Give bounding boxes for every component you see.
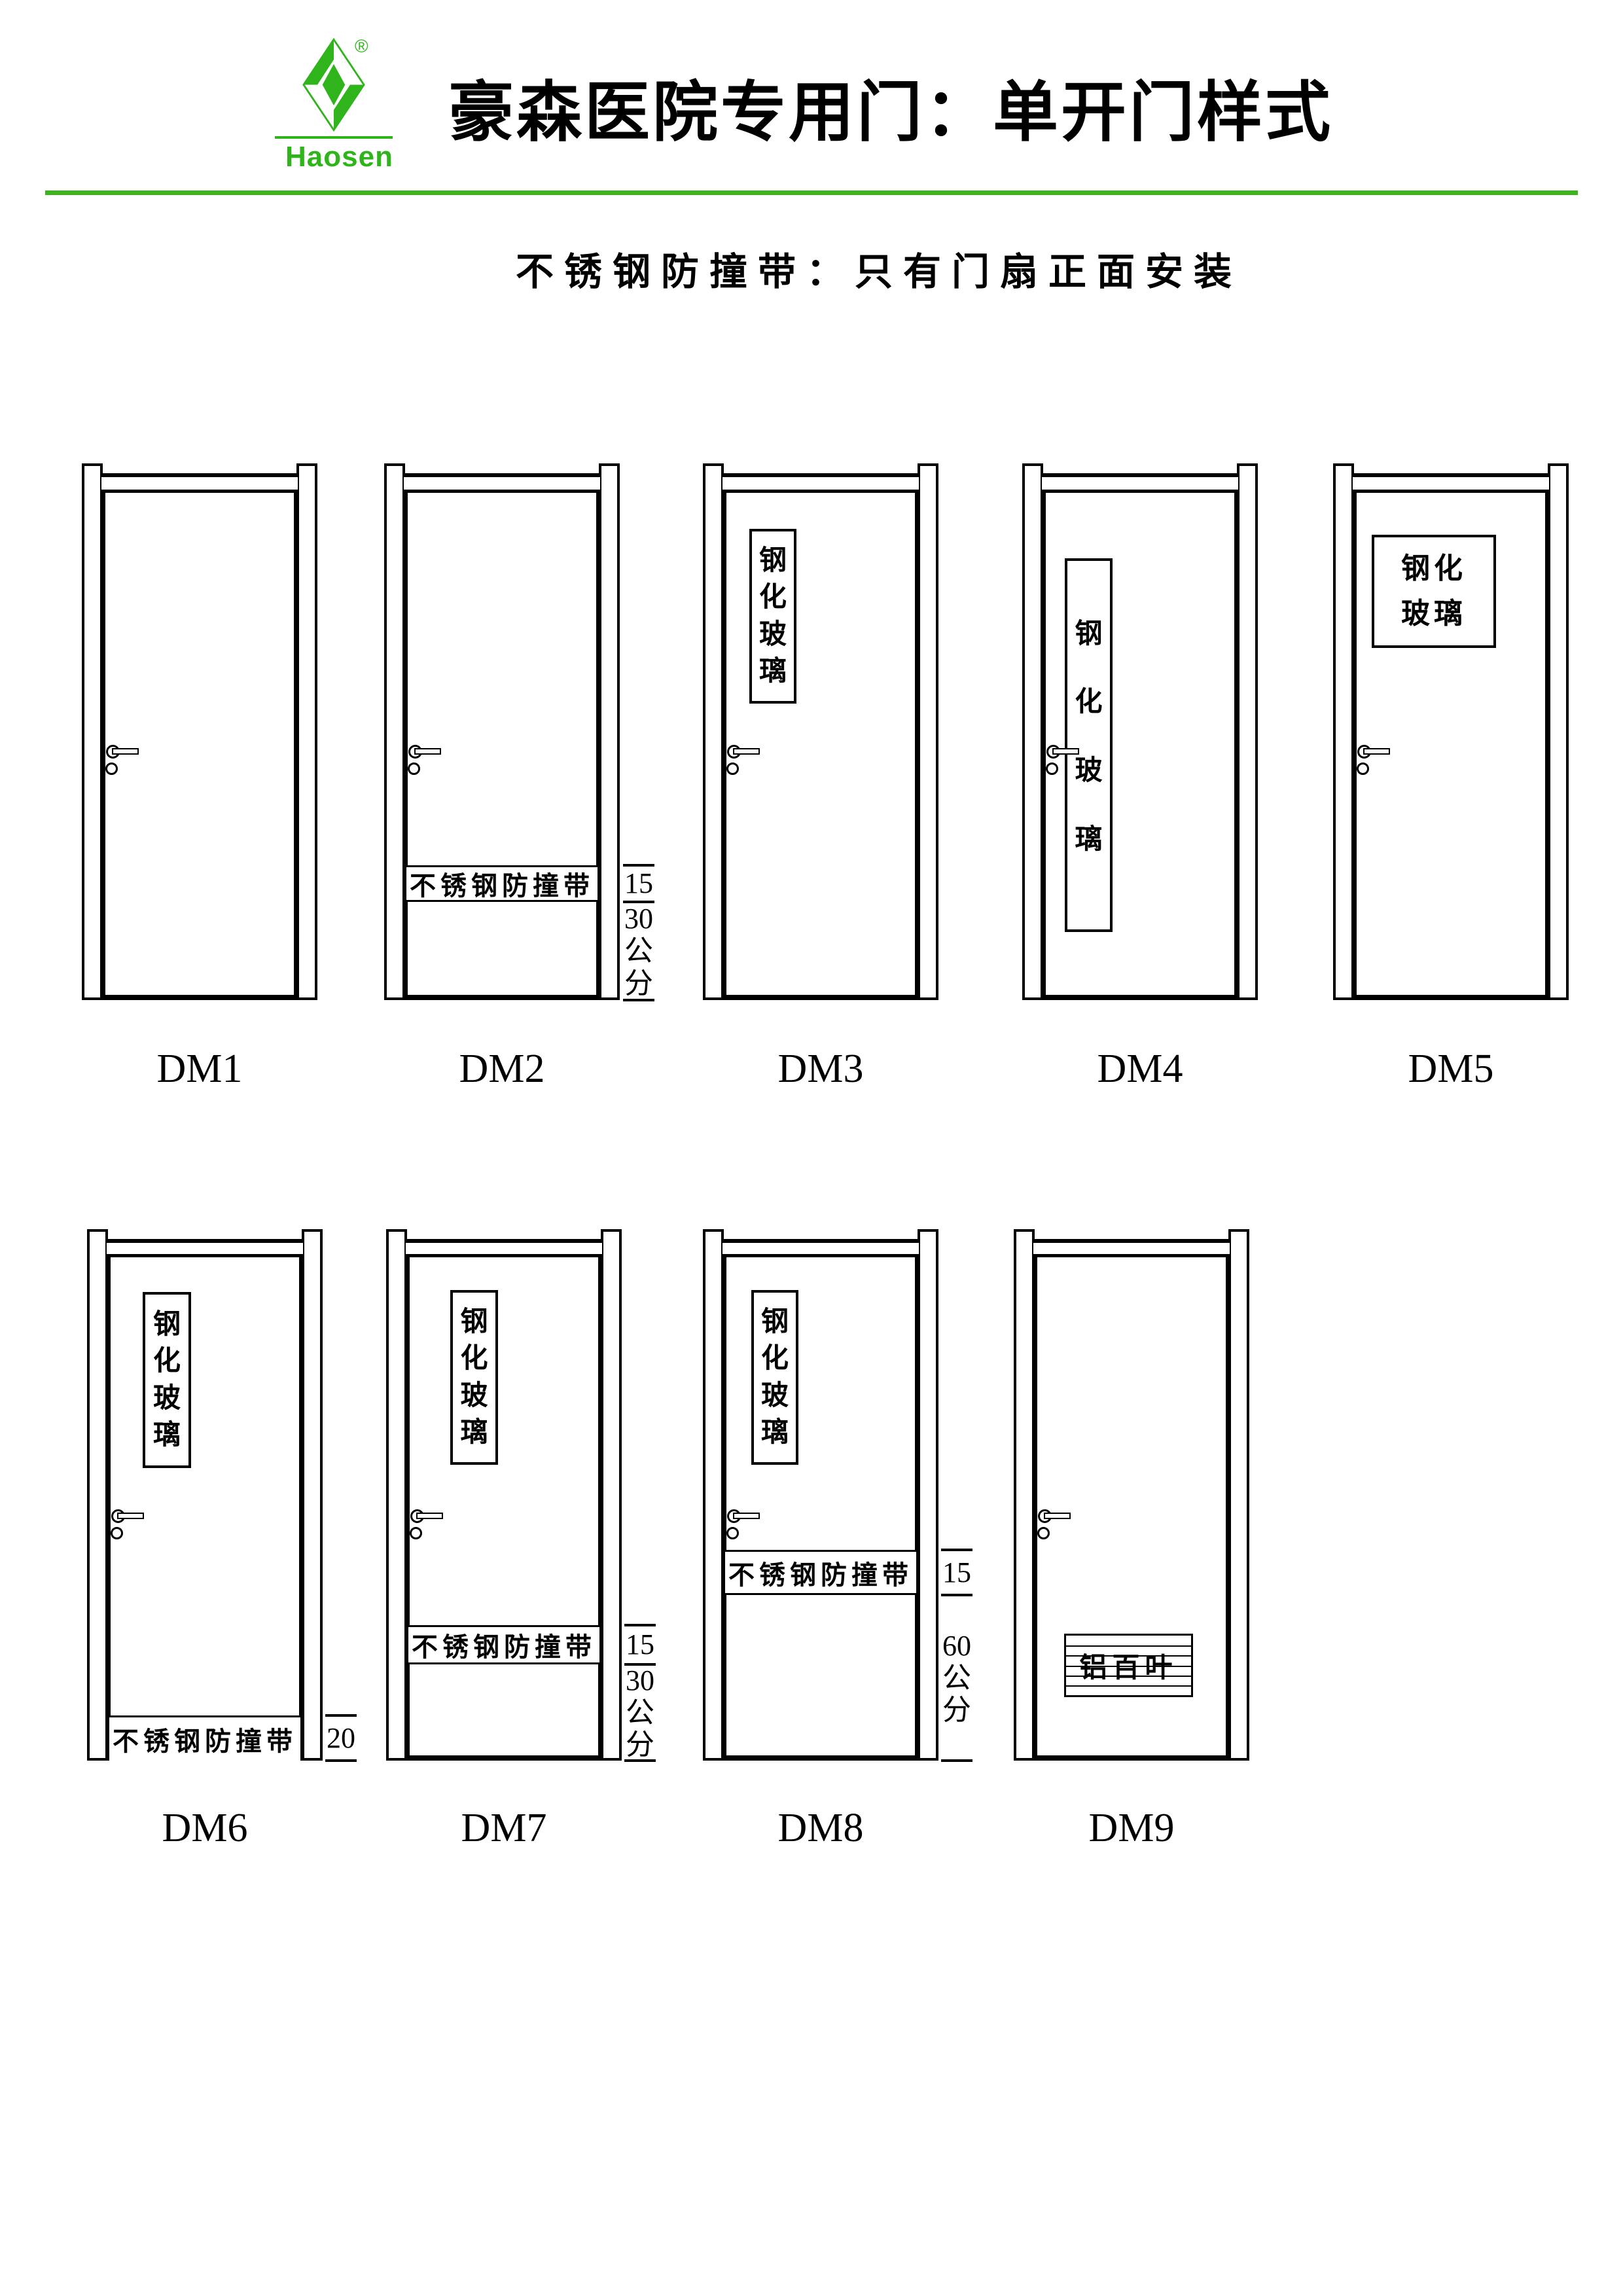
louver-label: 铝百叶	[1066, 1636, 1191, 1695]
door-leaf	[103, 493, 296, 1000]
door-lock-cylinder	[1046, 762, 1058, 775]
dim-segment-label: 15	[616, 865, 662, 902]
glass-panel: 钢化玻璃	[749, 529, 796, 704]
dim-text-line: 15	[624, 867, 653, 899]
dim-segment-label: 15	[934, 1550, 980, 1595]
door-label: DM6	[87, 1805, 323, 1852]
glass-panel-label: 化	[153, 1346, 181, 1376]
logo-brand-text: Haosen	[285, 141, 393, 173]
door-head-rail	[722, 473, 919, 493]
dim-text-line: 20	[327, 1722, 355, 1754]
haosen-logo: ® Haosen	[275, 36, 406, 167]
glass-panel-label: 玻	[1075, 756, 1102, 786]
door-lock-cylinder	[726, 1527, 739, 1539]
door-handle-lever	[1052, 748, 1079, 755]
door-jamb-right	[1228, 1229, 1249, 1761]
door-handle-lever	[1044, 1513, 1071, 1519]
door-jamb-left	[703, 1229, 724, 1761]
door-handle-lever	[112, 748, 139, 755]
door-label: DM1	[82, 1046, 317, 1092]
glass-panel-label: 璃	[153, 1420, 181, 1450]
door-head-rail	[1353, 473, 1549, 493]
door-handle-lever	[117, 1513, 144, 1519]
glass-panel: 钢化玻璃	[450, 1290, 498, 1465]
door-jamb-right	[296, 463, 317, 1000]
door-dm3: 钢化玻璃DM3	[703, 463, 1030, 1170]
door-dm1: DM1	[82, 463, 409, 1170]
door-label: DM5	[1333, 1046, 1569, 1092]
dim-text-line: 分	[624, 967, 653, 999]
door-dm8: 钢化玻璃不锈钢防撞带1560公分DM8	[703, 1229, 1030, 1931]
glass-panel-label: 化	[761, 1344, 789, 1374]
door-head-rail	[406, 1239, 602, 1257]
door-dm9: 铝百叶DM9	[1014, 1229, 1341, 1931]
door-label: DM9	[1014, 1805, 1249, 1852]
door-label: DM2	[384, 1046, 620, 1092]
glass-panel-label: 玻	[460, 1381, 488, 1411]
dim-text-line: 30	[624, 903, 653, 935]
dim-segment-label: 20	[318, 1715, 364, 1761]
door-leaf	[405, 493, 599, 1000]
glass-panel: 钢化玻璃	[143, 1292, 191, 1468]
door-dm2: 不锈钢防撞带1530公分DM2	[384, 463, 711, 1170]
door-label: DM3	[703, 1046, 938, 1092]
door-jamb-left	[384, 463, 405, 1000]
dim-text-line: 公	[626, 1696, 654, 1729]
glass-panel: 钢化玻璃	[1065, 558, 1113, 932]
door-dm4: 钢化玻璃DM4	[1022, 463, 1349, 1170]
glass-panel-label: 玻	[761, 1381, 789, 1411]
door-dm7: 钢化玻璃不锈钢防撞带1530公分DM7	[386, 1229, 713, 1931]
dim-text-line: 15	[626, 1628, 654, 1660]
glass-panel-label: 玻璃	[1401, 592, 1467, 636]
bump-strip: 不锈钢防撞带	[408, 1625, 599, 1664]
door-head-rail	[1033, 1239, 1230, 1257]
door-jamb-right	[918, 463, 938, 1000]
glass-panel-label: 钢	[1075, 619, 1102, 649]
door-lock-cylinder	[105, 762, 118, 775]
door-head-rail	[404, 473, 600, 493]
registered-mark: ®	[355, 36, 368, 57]
door-dm6: 钢化玻璃不锈钢防撞带20DM6	[87, 1229, 414, 1931]
glass-panel-label: 玻	[759, 620, 787, 650]
door-head-rail	[107, 1239, 303, 1257]
door-lock-cylinder	[408, 762, 420, 775]
door-handle-lever	[414, 748, 441, 755]
bump-strip: 不锈钢防撞带	[406, 865, 597, 902]
glass-panel-label: 钢	[460, 1307, 488, 1337]
door-jamb-left	[386, 1229, 407, 1761]
door-jamb-left	[703, 463, 724, 1000]
glass-panel-label: 化	[460, 1344, 488, 1374]
glass-panel-label: 钢化	[1401, 547, 1467, 591]
glass-panel-label: 化	[1075, 687, 1102, 717]
glass-panel-label: 玻	[153, 1384, 181, 1414]
door-head-rail	[101, 473, 298, 493]
door-handle-lever	[1363, 748, 1390, 755]
door-head-rail	[722, 1239, 919, 1257]
door-jamb-left	[87, 1229, 108, 1761]
door-dm5: 钢化玻璃DM5	[1333, 463, 1623, 1170]
door-lock-cylinder	[1037, 1527, 1050, 1539]
door-jamb-left	[82, 463, 103, 1000]
door-jamb-right	[1548, 463, 1569, 1000]
page-title: 豪森医院专用门：单开门样式	[448, 59, 1333, 154]
glass-panel: 钢化玻璃	[751, 1290, 798, 1465]
door-leaf	[407, 1257, 601, 1761]
dim-text-line: 公	[624, 935, 653, 967]
glass-panel-label: 璃	[460, 1418, 488, 1448]
glass-panel-label: 璃	[1075, 825, 1102, 855]
door-jamb-right	[302, 1229, 323, 1761]
glass-panel-label: 钢	[153, 1310, 181, 1340]
door-jamb-left	[1022, 463, 1043, 1000]
door-lock-cylinder	[111, 1527, 123, 1539]
door-label: DM7	[386, 1805, 622, 1852]
page-subtitle: 不锈钢防撞带：只有门扇正面安装	[516, 241, 1242, 296]
glass-panel-label: 钢	[761, 1307, 789, 1337]
page: ® Haosen 豪森医院专用门：单开门样式 不锈钢防撞带：只有门扇正面安装 D…	[0, 0, 1623, 2296]
louver-panel: 铝百叶	[1064, 1634, 1193, 1697]
bump-strip: 不锈钢防撞带	[109, 1715, 300, 1761]
door-jamb-left	[1333, 463, 1354, 1000]
dim-text-line: 分	[942, 1694, 971, 1726]
glass-panel: 钢化玻璃	[1372, 535, 1496, 648]
dim-segment-label: 15	[617, 1625, 663, 1664]
door-leaf	[108, 1257, 302, 1761]
dim-segment-label: 30公分	[617, 1664, 663, 1761]
dim-segment-label: 30公分	[616, 902, 662, 1000]
door-lock-cylinder	[410, 1527, 422, 1539]
glass-panel-label: 璃	[761, 1418, 789, 1448]
dim-text-line: 60	[942, 1630, 971, 1662]
door-label: DM8	[703, 1805, 938, 1852]
door-handle-lever	[733, 748, 760, 755]
bump-strip: 不锈钢防撞带	[725, 1550, 916, 1595]
door-label: DM4	[1022, 1046, 1258, 1092]
dim-text-line: 30	[626, 1664, 654, 1696]
door-lock-cylinder	[726, 762, 739, 775]
glass-panel-label: 钢	[759, 546, 787, 576]
door-handle-lever	[733, 1513, 760, 1519]
door-handle-lever	[416, 1513, 443, 1519]
door-jamb-left	[1014, 1229, 1035, 1761]
dim-text-line: 15	[942, 1556, 971, 1588]
glass-panel-label: 化	[759, 583, 787, 613]
logo-underline	[275, 136, 393, 139]
dim-segment-label: 60公分	[934, 1595, 980, 1761]
dim-text-line: 分	[626, 1729, 654, 1761]
glass-panel-label: 璃	[759, 656, 787, 687]
door-head-rail	[1042, 473, 1238, 493]
door-lock-cylinder	[1357, 762, 1369, 775]
door-jamb-right	[1237, 463, 1258, 1000]
dim-text-line: 公	[942, 1662, 971, 1694]
header-rule	[45, 190, 1578, 195]
